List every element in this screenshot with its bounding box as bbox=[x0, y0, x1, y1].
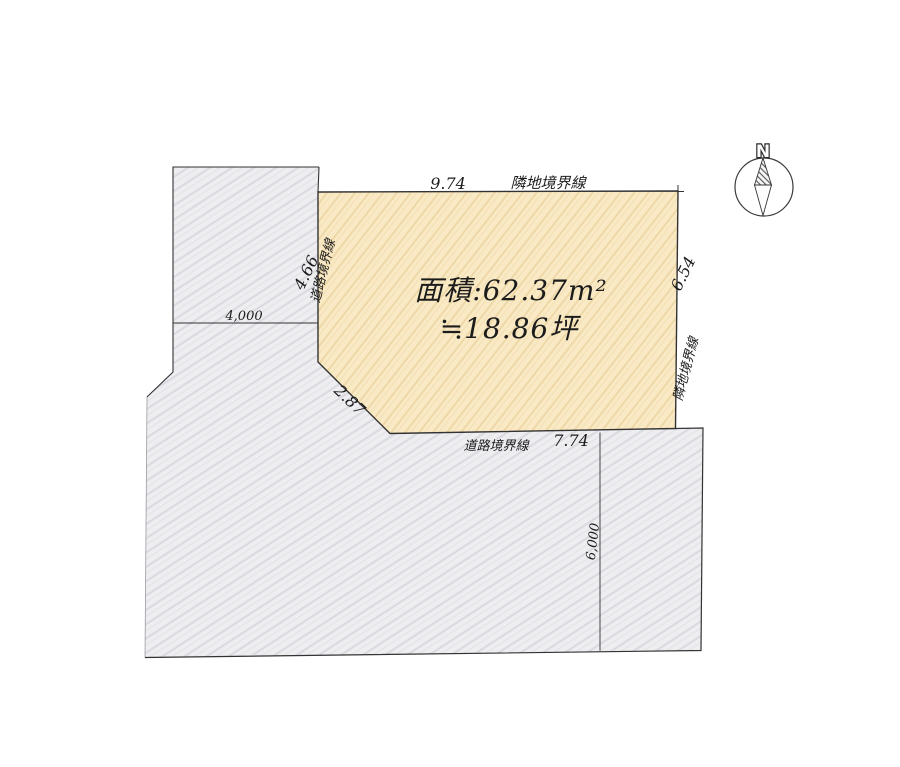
boundary-label-top: 隣地境界線 bbox=[510, 174, 587, 192]
compass-north-label: N bbox=[756, 142, 770, 162]
lot-area-label-tsubo: ≒18.86坪 bbox=[440, 312, 582, 345]
corner-ticks bbox=[678, 185, 684, 192]
lot-area-label-m2: 面積:62.37m² bbox=[414, 274, 607, 307]
dimension-bottom: 7.74 bbox=[553, 431, 589, 450]
dimension-top: 9.74 bbox=[430, 174, 466, 193]
boundary-label-bottom: 道路境界線 bbox=[463, 439, 530, 454]
north-compass: N bbox=[735, 142, 793, 216]
site-plan-svg: 面積:62.37m² ≒18.86坪 9.74 隣地境界線 6.54 隣地境界線… bbox=[0, 0, 900, 767]
road-width-dimension-left: 4,000 bbox=[224, 309, 262, 324]
site-plan-page: 面積:62.37m² ≒18.86坪 9.74 隣地境界線 6.54 隣地境界線… bbox=[0, 0, 900, 767]
